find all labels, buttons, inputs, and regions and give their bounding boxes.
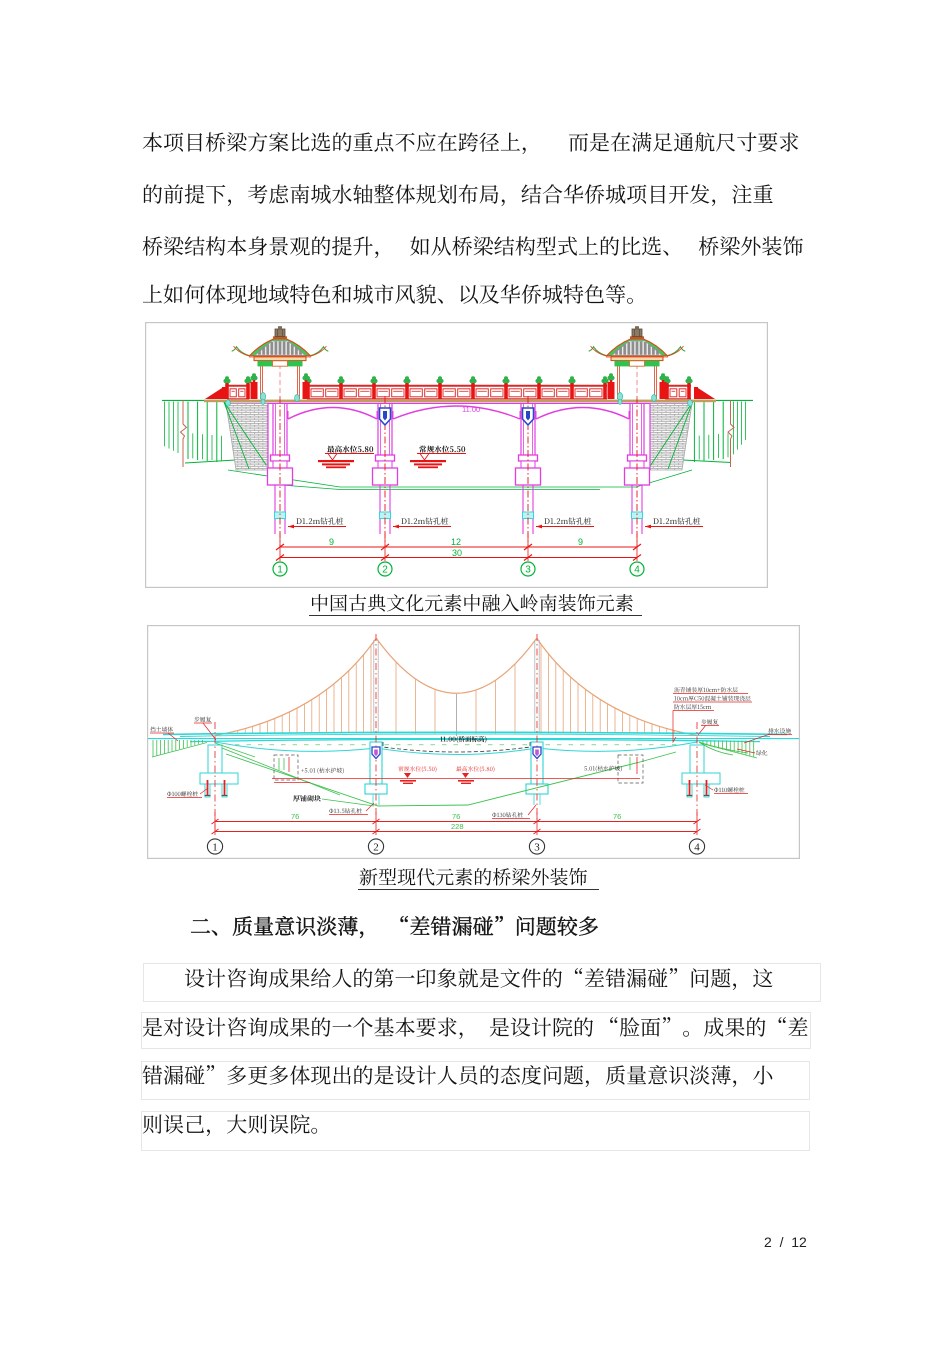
svg-text:228: 228: [451, 822, 464, 831]
svg-text:2: 2: [382, 565, 388, 576]
svg-text:Φ110螺栓桩: Φ110螺栓桩: [714, 785, 745, 794]
svg-text:3: 3: [534, 842, 540, 854]
svg-text:11.00: 11.00: [462, 405, 480, 414]
svg-text:D1.2m钻孔桩: D1.2m钻孔桩: [296, 516, 344, 527]
svg-text:5.01(枯水护坡): 5.01(枯水护坡): [584, 764, 623, 773]
svg-text:步履复: 步履复: [194, 715, 212, 724]
svg-text:30: 30: [452, 548, 462, 558]
svg-text:绿化: 绿化: [756, 748, 768, 757]
svg-text:1: 1: [212, 842, 218, 854]
svg-text:常规水位(5.50): 常规水位(5.50): [398, 764, 437, 773]
svg-text:3: 3: [525, 565, 531, 576]
svg-text:防水层厚15cm: 防水层厚15cm: [674, 702, 712, 711]
svg-text:4: 4: [634, 565, 640, 576]
svg-text:9: 9: [578, 537, 583, 547]
svg-text:76: 76: [291, 812, 299, 821]
svg-text:Φ100螺栓桩: Φ100螺栓桩: [167, 789, 198, 798]
svg-text:最高水位(5.80): 最高水位(5.80): [456, 764, 495, 773]
svg-text:步履复: 步履复: [701, 717, 719, 726]
svg-text:2: 2: [373, 842, 379, 854]
svg-text:厚铺砌块: 厚铺砌块: [293, 794, 321, 804]
svg-text:76: 76: [452, 812, 460, 821]
svg-text:9: 9: [329, 537, 334, 547]
svg-text:D1.2m钻孔桩: D1.2m钻孔桩: [544, 516, 592, 527]
svg-text:D1.2m钻孔桩: D1.2m钻孔桩: [401, 516, 449, 527]
svg-text:4: 4: [694, 842, 700, 854]
svg-text:1: 1: [277, 565, 283, 576]
svg-text:Φ130钻孔桩: Φ130钻孔桩: [492, 810, 523, 819]
svg-text:76: 76: [613, 812, 621, 821]
svg-text:+5.01 (枯水护坡): +5.01 (枯水护坡): [301, 766, 344, 775]
svg-text:挡土墙体: 挡土墙体: [150, 725, 173, 734]
svg-text:12: 12: [451, 537, 461, 547]
svg-text:Φ13.5钻孔桩: Φ13.5钻孔桩: [329, 806, 362, 815]
svg-text:D1.2m钻孔桩: D1.2m钻孔桩: [653, 516, 701, 527]
svg-text:11.00(桥面标高): 11.00(桥面标高): [440, 735, 488, 744]
svg-text:排水设施: 排水设施: [768, 726, 791, 735]
